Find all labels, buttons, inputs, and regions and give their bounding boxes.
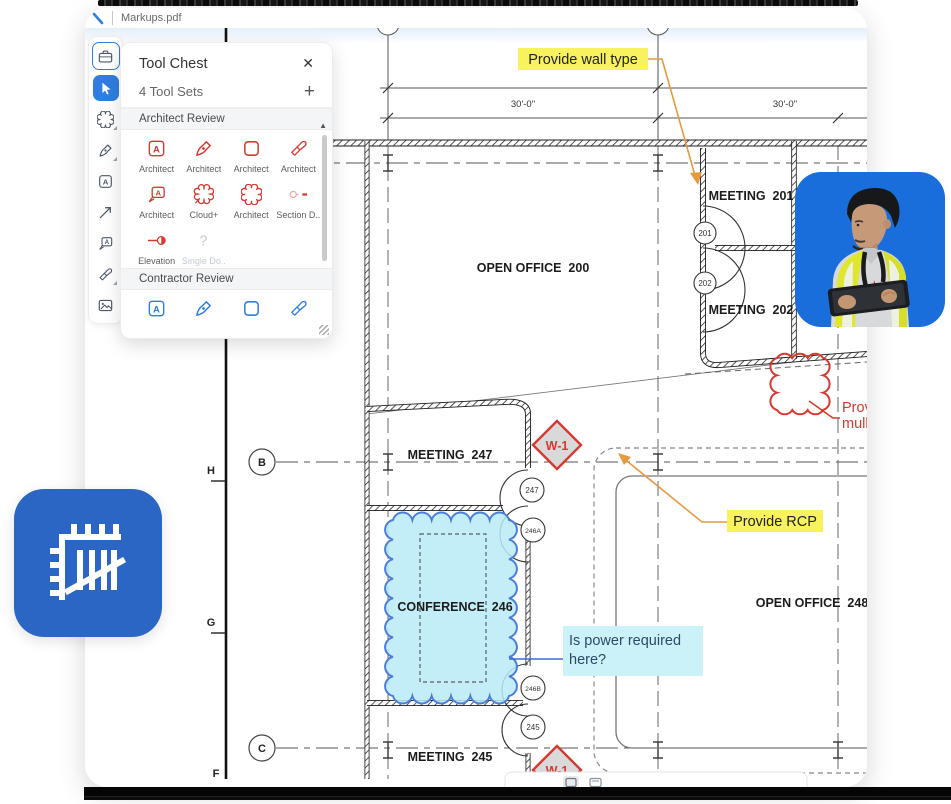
svg-text:W-1: W-1 bbox=[546, 439, 569, 453]
tool-architect-rectangle[interactable]: Architect bbox=[228, 138, 275, 174]
tool-chest-panel: Tool Chest ✕ 4 Tool Sets + Architect Rev… bbox=[120, 42, 333, 339]
room-open-office-248: OPEN OFFICE 248 bbox=[756, 596, 867, 610]
rectangle-icon bbox=[241, 298, 262, 319]
tool-chest-title: Tool Chest bbox=[139, 56, 208, 72]
tool-architect-callout[interactable]: Architect bbox=[133, 184, 180, 220]
tool-architect-textbox[interactable]: Architect bbox=[133, 138, 180, 174]
svg-text:F: F bbox=[213, 768, 220, 780]
cloud-plus-icon bbox=[193, 184, 214, 205]
document-tab[interactable]: Markups.pdf bbox=[121, 12, 182, 24]
tool-cloud-plus[interactable]: Cloud+ bbox=[180, 184, 227, 220]
arrow-icon bbox=[97, 204, 114, 221]
cloud-tool-button[interactable] bbox=[93, 106, 119, 132]
tab-divider bbox=[112, 11, 113, 25]
mini-toolbar-popup[interactable] bbox=[505, 772, 807, 787]
ruler-count-icon bbox=[40, 515, 136, 611]
svg-text:B: B bbox=[258, 457, 266, 469]
tool-contractor-highlighter[interactable] bbox=[275, 298, 322, 319]
tool-contractor-pen[interactable] bbox=[180, 298, 227, 319]
svg-text:mulli: mulli bbox=[842, 416, 867, 432]
svg-text:H: H bbox=[207, 465, 215, 477]
svg-text:246A: 246A bbox=[525, 528, 541, 535]
highlighter-icon bbox=[288, 298, 309, 319]
svg-text:Provide wall type: Provide wall type bbox=[528, 52, 638, 68]
tool-contractor-rectangle[interactable] bbox=[228, 298, 275, 319]
elevation-marker-icon bbox=[146, 230, 167, 251]
panel-scrollbar[interactable] bbox=[322, 135, 327, 261]
svg-text:Is power required: Is power required bbox=[569, 633, 681, 649]
svg-text:201: 201 bbox=[698, 229, 712, 238]
rcp-boundary bbox=[594, 448, 867, 773]
textbox-tool-button[interactable] bbox=[93, 168, 119, 194]
select-tool-button[interactable] bbox=[93, 75, 119, 101]
tool-architect-highlighter[interactable]: Architect bbox=[275, 138, 322, 174]
pen-tool-button[interactable] bbox=[93, 137, 119, 163]
image-tool-button[interactable] bbox=[93, 292, 119, 318]
highlighter-icon bbox=[288, 138, 309, 159]
section-architect-review[interactable]: Architect Review bbox=[121, 108, 332, 130]
cloud-icon bbox=[97, 111, 114, 128]
tool-architect-cloud[interactable]: Architect bbox=[228, 184, 275, 220]
highlighter-icon bbox=[97, 266, 114, 283]
tool-section-detail[interactable]: Section D... bbox=[275, 184, 322, 220]
dimension-left: 30'-0" bbox=[511, 99, 535, 110]
wall-type-markup[interactable]: Provide wall type bbox=[518, 48, 702, 185]
svg-text:202: 202 bbox=[698, 279, 712, 288]
room-meeting-247: MEETING 247 bbox=[408, 448, 493, 462]
room-meeting-245: MEETING 245 bbox=[408, 750, 493, 764]
svg-text:here?: here? bbox=[569, 652, 606, 668]
section-marker-icon bbox=[288, 184, 309, 205]
screenshot-stage: 30'-0" 30'-0" H G F B bbox=[0, 0, 951, 804]
pen-icon bbox=[193, 138, 214, 159]
power-note-markup[interactable]: Is power required here? bbox=[509, 626, 703, 676]
dimension-lines: 30'-0" 30'-0" bbox=[380, 83, 867, 123]
svg-text:247: 247 bbox=[525, 486, 539, 495]
room-meeting-201: MEETING 201 bbox=[709, 189, 794, 203]
add-tool-set-icon[interactable]: + bbox=[301, 85, 318, 99]
panel-resize-handle[interactable] bbox=[319, 325, 329, 335]
section-contractor-review[interactable]: Contractor Review bbox=[121, 268, 332, 290]
callout-icon bbox=[146, 184, 167, 205]
pen-icon bbox=[193, 298, 214, 319]
room-meeting-202: MEETING 202 bbox=[709, 303, 794, 317]
screenshot-top-edge bbox=[98, 0, 858, 6]
tool-elevation[interactable]: Elevation bbox=[133, 230, 180, 266]
image-icon bbox=[97, 297, 114, 314]
tool-architect-pen[interactable]: Architect bbox=[180, 138, 227, 174]
markup-toolbar bbox=[88, 36, 123, 324]
cursor-icon bbox=[97, 80, 114, 97]
dimension-right: 30'-0" bbox=[773, 99, 797, 110]
pen-icon bbox=[97, 142, 114, 159]
tool-contractor-textbox[interactable] bbox=[133, 298, 180, 319]
scroll-up-icon[interactable]: ▲ bbox=[319, 121, 327, 130]
tool-chest-panel-button[interactable] bbox=[92, 42, 120, 70]
tool-single-document[interactable]: Single Do... bbox=[180, 230, 227, 266]
callout-tool-button[interactable] bbox=[93, 230, 119, 256]
callout-icon bbox=[97, 235, 114, 252]
tool-sets-count: 4 Tool Sets bbox=[139, 84, 203, 99]
svg-text:246B: 246B bbox=[525, 686, 541, 693]
pen-stub-icon bbox=[91, 11, 105, 25]
textbox-icon bbox=[146, 138, 167, 159]
tab-bar: Markups.pdf bbox=[85, 8, 867, 28]
close-icon[interactable]: ✕ bbox=[298, 55, 318, 72]
svg-text:Prov: Prov bbox=[842, 400, 867, 416]
screenshot-bottom-edge bbox=[84, 787, 951, 800]
rectangle-icon bbox=[241, 138, 262, 159]
textbox-icon bbox=[97, 173, 114, 190]
textbox-icon bbox=[146, 298, 167, 319]
briefcase-icon bbox=[97, 48, 114, 65]
svg-text:245: 245 bbox=[526, 723, 540, 732]
highlighter-tool-button[interactable] bbox=[93, 261, 119, 287]
room-open-office-200: OPEN OFFICE 200 bbox=[477, 261, 590, 275]
arrow-tool-button[interactable] bbox=[93, 199, 119, 225]
measurement-app-icon[interactable] bbox=[14, 489, 162, 637]
svg-text:C: C bbox=[258, 743, 266, 755]
svg-text:Provide RCP: Provide RCP bbox=[733, 514, 817, 530]
cloud-icon bbox=[241, 184, 262, 205]
site-worker-photo bbox=[795, 172, 945, 327]
question-icon bbox=[193, 230, 214, 251]
room-conference-246: CONFERENCE 246 bbox=[397, 600, 512, 614]
rcp-markup[interactable]: Provide RCP bbox=[618, 453, 823, 532]
svg-text:G: G bbox=[207, 617, 216, 629]
